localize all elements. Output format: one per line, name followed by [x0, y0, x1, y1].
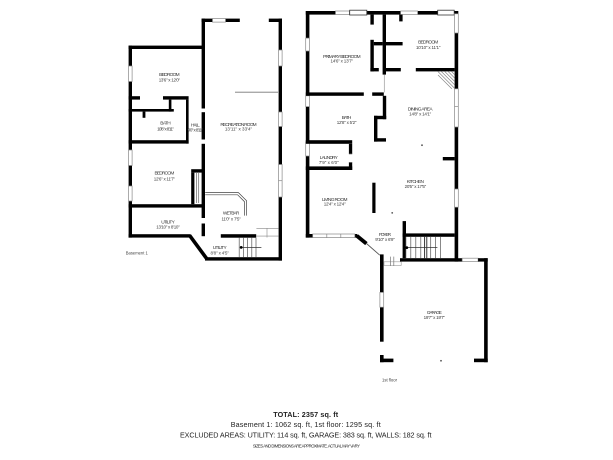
svg-text:1st floor: 1st floor	[382, 378, 397, 384]
svg-text:14'8" x 14'1": 14'8" x 14'1"	[409, 112, 431, 117]
svg-text:13'11" x 33'4": 13'11" x 33'4"	[225, 127, 253, 132]
svg-text:10'8" x 8'11": 10'8" x 8'11"	[157, 127, 174, 132]
svg-text:SIZES AND DIMENSIONS ARE APPRO: SIZES AND DIMENSIONS ARE APPROXIMATE. AC…	[253, 444, 360, 449]
svg-text:WET BAR: WET BAR	[223, 211, 240, 217]
svg-text:9'10" x 6'9": 9'10" x 6'9"	[375, 237, 395, 242]
svg-text:8'8" x 4'5": 8'8" x 4'5"	[211, 251, 230, 256]
svg-text:9'0" x 8'11": 9'0" x 8'11"	[188, 128, 204, 133]
svg-text:10'10" x 11'1": 10'10" x 11'1"	[416, 45, 441, 50]
svg-text:13'6" x 12'0": 13'6" x 12'0"	[159, 78, 181, 83]
svg-text:TOTAL: 2357 sq. ft: TOTAL: 2357 sq. ft	[273, 410, 339, 419]
svg-text:7'9" x 6'0": 7'9" x 6'0"	[319, 160, 339, 165]
svg-text:19'7" x 19'7": 19'7" x 19'7"	[424, 315, 446, 320]
svg-text:EXCLUDED AREAS: UTILITY: 114 s: EXCLUDED AREAS: UTILITY: 114 sq. ft, GAR…	[180, 431, 432, 440]
svg-text:11'0" x 7'5": 11'0" x 7'5"	[222, 217, 242, 222]
svg-text:12'6" x 11'7": 12'6" x 11'7"	[154, 177, 176, 182]
svg-text:BEDROOM: BEDROOM	[154, 171, 174, 177]
svg-text:12'8" x 5'2": 12'8" x 5'2"	[337, 120, 357, 125]
svg-text:14'6" x 13'7": 14'6" x 13'7"	[331, 59, 354, 64]
svg-text:12'4" x 12'4": 12'4" x 12'4"	[324, 201, 346, 206]
svg-text:20'5" x 17'5": 20'5" x 17'5"	[405, 184, 427, 189]
svg-text:Basement 1: 1062 sq. ft, 1st f: Basement 1: 1062 sq. ft, 1st floor: 1295…	[231, 420, 381, 429]
svg-text:13'10" x 8'10": 13'10" x 8'10"	[156, 225, 180, 230]
svg-text:Basement 1: Basement 1	[126, 251, 148, 257]
svg-text:BATH: BATH	[160, 120, 171, 126]
